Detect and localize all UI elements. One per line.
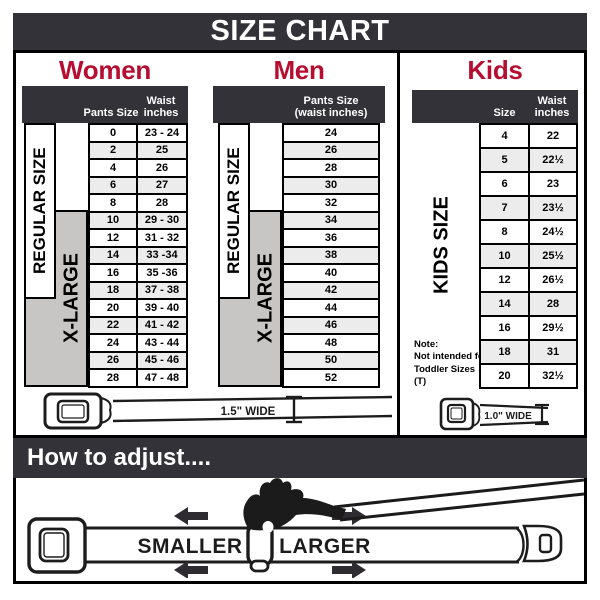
kids-size-cell: 5: [479, 147, 530, 173]
men-regular-label: REGULAR SIZE: [218, 123, 250, 299]
men-size-table: Pants Size (waist inches) REGULAR SIZE X…: [213, 86, 385, 391]
kids-waist-cell: 22½: [528, 147, 578, 173]
kids-waist-cell: 23: [528, 171, 578, 197]
kids-size-cell: 7: [479, 195, 530, 221]
women-heading: Women: [22, 55, 188, 85]
kids-belt-width-label: 1.0" WIDE: [484, 411, 532, 422]
kids-waist-cell: 31: [528, 339, 578, 365]
kids-size-cell: 6: [479, 171, 530, 197]
page-title: SIZE CHART: [211, 15, 390, 48]
kids-size-cell: 10: [479, 243, 530, 269]
title-bar: SIZE CHART: [13, 13, 587, 50]
kids-waist-cell: 24½: [528, 219, 578, 245]
kids-col-size: Size: [479, 90, 530, 123]
kids-size-table: Size Waist inches KIDS SIZE Note: Not in…: [412, 90, 578, 390]
women-col-pants-size: Pants Size: [80, 86, 142, 123]
kids-size-cell: 20: [479, 363, 530, 389]
kids-size-cell: 4: [479, 123, 530, 149]
kids-belt-illustration: 1.0" WIDE: [438, 396, 558, 434]
kids-heading: Kids: [412, 55, 578, 85]
kids-waist-cell: 25½: [528, 243, 578, 269]
how-to-canvas: SMALLER LARGER: [13, 478, 587, 584]
kids-size-cell: 16: [479, 315, 530, 341]
kids-waist-cell: 32½: [528, 363, 578, 389]
kids-waist-cell: 26½: [528, 267, 578, 293]
kids-size-cell: 14: [479, 291, 530, 317]
size-chart-infographic: SIZE CHART Women Men Kids Pants Size Wai…: [0, 0, 600, 600]
men-heading: Men: [213, 55, 385, 85]
charts-section: Women Men Kids Pants Size Waist inches R…: [13, 50, 587, 438]
how-to-bar: How to adjust....: [13, 438, 587, 478]
kids-waist-cell: 23½: [528, 195, 578, 221]
kids-size-cell: 12: [479, 267, 530, 293]
kids-waist-cell: 22: [528, 123, 578, 149]
larger-label: LARGER: [279, 535, 371, 558]
kids-section-divider: [397, 53, 400, 435]
kids-col-waist: Waist inches: [526, 90, 578, 123]
men-col-pants-size: Pants Size (waist inches): [277, 86, 385, 123]
adult-belt-illustration: 1.5" WIDE: [18, 391, 392, 435]
women-col-waist: Waist inches: [134, 86, 188, 123]
smaller-label: SMALLER: [138, 535, 243, 558]
women-regular-label: REGULAR SIZE: [24, 123, 56, 299]
how-to-heading: How to adjust....: [27, 444, 211, 472]
kids-waist-cell: 29½: [528, 315, 578, 341]
kids-side-label: KIDS SIZE: [424, 160, 460, 330]
women-size-table: Pants Size Waist inches REGULAR SIZE X-L…: [22, 86, 188, 391]
kids-waist-cell: 28: [528, 291, 578, 317]
kids-size-cell: 18: [479, 339, 530, 365]
women-xlarge-label: X-LARGE: [56, 210, 88, 387]
men-size-cell: 52: [282, 368, 380, 388]
belt-strap-line: [113, 397, 392, 401]
how-to-section: How to adjust....: [13, 438, 587, 584]
adult-belt-width-label: 1.5" WIDE: [221, 406, 276, 418]
women-waist-cell: 47 - 48: [136, 368, 188, 388]
men-xlarge-label: X-LARGE: [250, 210, 282, 387]
kids-note: Note: Not intended for Toddler Sizes (T): [414, 339, 488, 388]
women-size-cell: 28: [88, 368, 138, 388]
kids-size-cell: 8: [479, 219, 530, 245]
adjust-belt-illustration: SMALLER LARGER: [16, 478, 584, 578]
